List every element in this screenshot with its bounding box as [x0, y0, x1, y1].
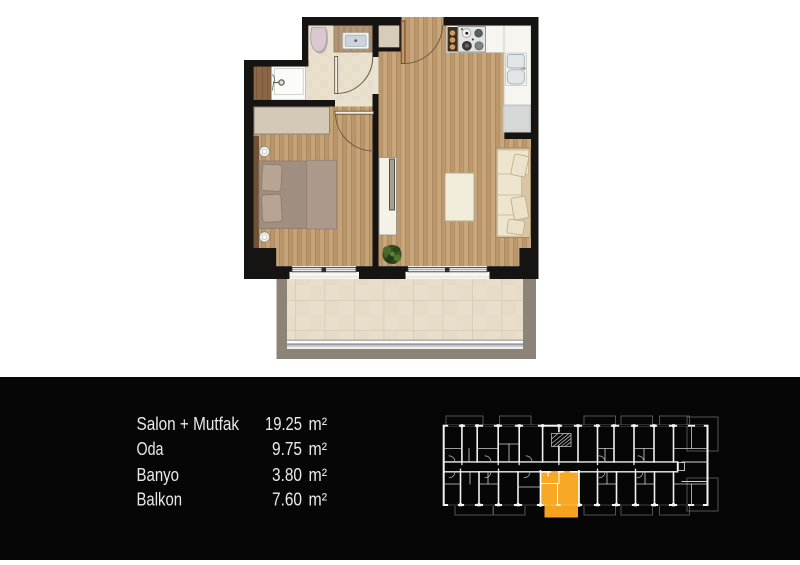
svg-text:m²: m² — [309, 490, 328, 510]
svg-text:Balkon: Balkon — [137, 490, 183, 510]
svg-text:Oda: Oda — [137, 439, 165, 459]
svg-text:Banyo: Banyo — [137, 465, 180, 485]
svg-text:Salon + Mutfak: Salon + Mutfak — [137, 414, 240, 434]
svg-text:9.75: 9.75 — [272, 439, 302, 459]
svg-text:3.80: 3.80 — [272, 465, 302, 485]
svg-text:m²: m² — [309, 439, 328, 459]
svg-text:m²: m² — [309, 414, 328, 434]
svg-text:7.60: 7.60 — [272, 490, 302, 510]
svg-text:19.25: 19.25 — [265, 414, 302, 434]
svg-text:m²: m² — [309, 465, 328, 485]
